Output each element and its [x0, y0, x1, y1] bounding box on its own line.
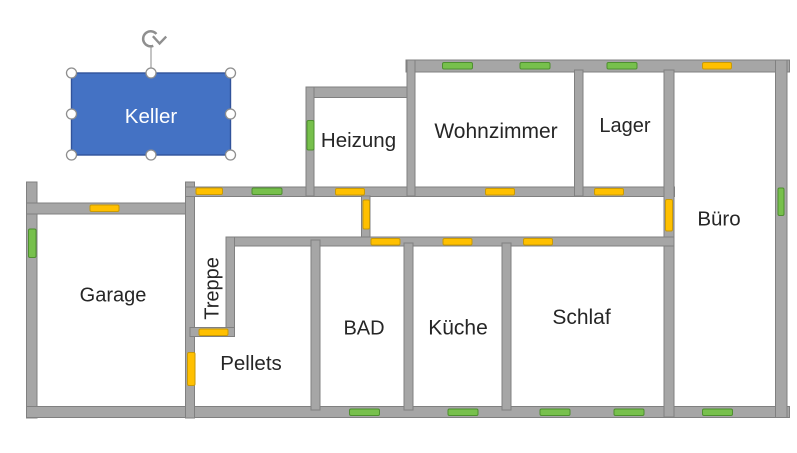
svg-text:Heizung: Heizung — [321, 129, 396, 152]
svg-text:Lager: Lager — [599, 115, 650, 137]
svg-text:Pellets: Pellets — [220, 352, 282, 375]
svg-text:Büro: Büro — [697, 208, 740, 231]
svg-text:Schlaf: Schlaf — [552, 306, 611, 329]
svg-text:Garage: Garage — [80, 285, 147, 307]
svg-text:Küche: Küche — [428, 317, 488, 340]
svg-text:Wohnzimmer: Wohnzimmer — [434, 120, 557, 143]
svg-text:Keller: Keller — [125, 105, 178, 128]
svg-text:Treppe: Treppe — [202, 257, 224, 320]
svg-text:BAD: BAD — [343, 318, 384, 340]
